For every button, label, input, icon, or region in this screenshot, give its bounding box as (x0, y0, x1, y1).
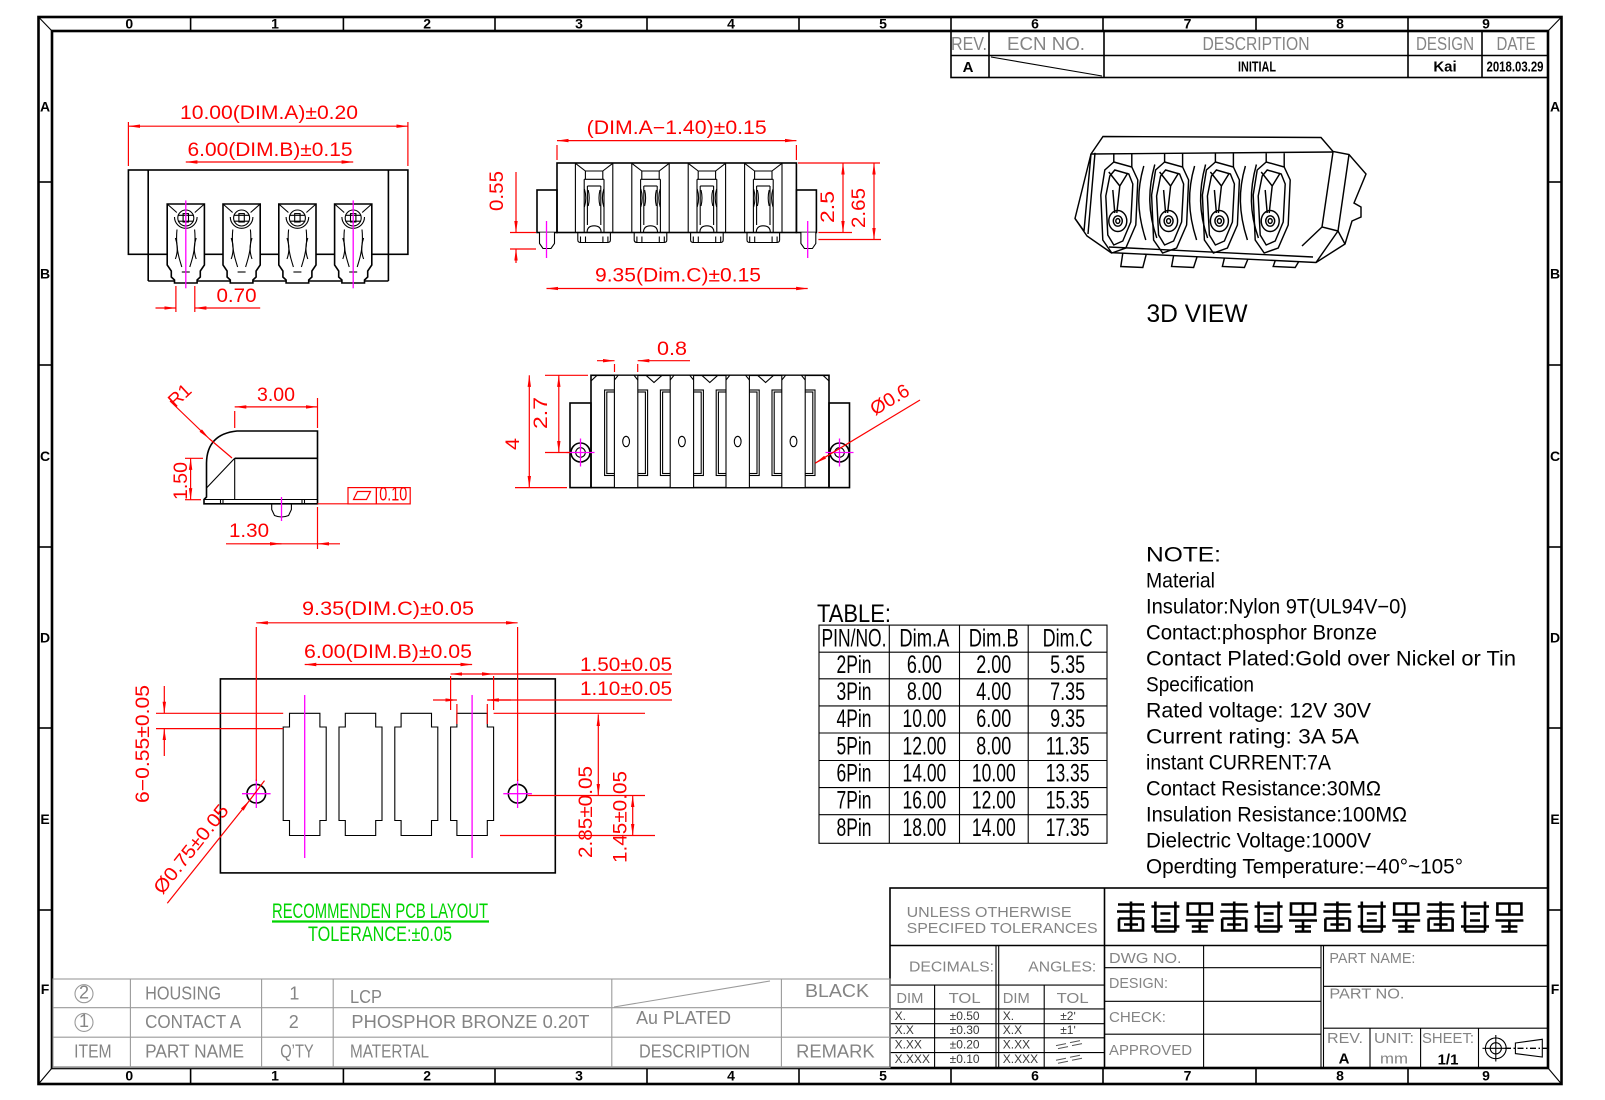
svg-text:8Pin: 8Pin (837, 814, 872, 842)
svg-text:UNIT:: UNIT: (1374, 1030, 1414, 1047)
svg-text:5: 5 (879, 16, 887, 32)
svg-text:18.00: 18.00 (903, 814, 947, 842)
svg-text:6.00: 6.00 (976, 705, 1011, 733)
svg-text:C: C (1550, 448, 1560, 464)
svg-text:DESCRIPTION: DESCRIPTION (1203, 34, 1310, 54)
svg-text:RECOMMENDEN PCB LAYOUT: RECOMMENDEN PCB LAYOUT (272, 900, 488, 923)
svg-text:C: C (40, 448, 50, 464)
svg-text:5: 5 (879, 1068, 887, 1084)
svg-text:6.00(DIM.B)±0.05: 6.00(DIM.B)±0.05 (304, 642, 472, 663)
svg-text:±0.10: ±0.10 (950, 1052, 980, 1066)
svg-text:A: A (1550, 99, 1560, 115)
svg-text:Specification: Specification (1146, 674, 1254, 697)
svg-text:2.85±0.05: 2.85±0.05 (576, 766, 597, 858)
svg-text:15.35: 15.35 (1046, 787, 1090, 815)
svg-text:Insulator:Nylon 9T(UL94V−0): Insulator:Nylon 9T(UL94V−0) (1146, 596, 1407, 619)
svg-text:A: A (40, 99, 50, 115)
svg-text:±1ʹ: ±1ʹ (1060, 1023, 1076, 1037)
svg-text:Rated voltage: 12V 30V: Rated voltage: 12V 30V (1146, 700, 1371, 723)
svg-text:F: F (1551, 981, 1560, 997)
svg-text:Dielectric Voltage:1000V: Dielectric Voltage:1000V (1146, 830, 1371, 853)
svg-text:REV.: REV. (1327, 1030, 1363, 1047)
svg-text:1.50±0.05: 1.50±0.05 (580, 655, 672, 676)
svg-text:1.50: 1.50 (171, 462, 192, 500)
svg-text:10.00: 10.00 (972, 760, 1016, 788)
svg-text:X.XX: X.XX (895, 1038, 922, 1052)
svg-text:LCP: LCP (350, 987, 382, 1007)
svg-text:2018.03.29: 2018.03.29 (1487, 59, 1544, 76)
svg-text:ANGLES:: ANGLES: (1028, 958, 1096, 975)
svg-text:6: 6 (1031, 16, 1039, 32)
svg-text:9.35(Dim.C)±0.15: 9.35(Dim.C)±0.15 (595, 266, 761, 287)
svg-text:PIN/NO.: PIN/NO. (822, 625, 887, 653)
svg-text:D: D (40, 630, 50, 646)
svg-text:3D VIEW: 3D VIEW (1147, 300, 1248, 328)
svg-text:DESIGN: DESIGN (1416, 34, 1474, 54)
svg-text:10.00: 10.00 (903, 705, 947, 733)
svg-text:4Pin: 4Pin (837, 705, 872, 733)
svg-text:TOL: TOL (949, 990, 981, 1007)
svg-text:1: 1 (79, 1011, 89, 1031)
svg-text:6.00: 6.00 (907, 651, 942, 679)
svg-text:4.00: 4.00 (976, 678, 1011, 706)
svg-text:Operdting Temperature:−40°~10: Operdting Temperature:−40°~105° (1146, 856, 1463, 879)
svg-text:Q’TY: Q’TY (280, 1042, 314, 1062)
svg-text:Au PLATED: Au PLATED (636, 1008, 731, 1028)
svg-text:TOLERANCE:±0.05: TOLERANCE:±0.05 (308, 923, 452, 946)
svg-text:Dim.C: Dim.C (1043, 625, 1093, 653)
svg-text:1: 1 (271, 1068, 279, 1084)
svg-text:2.7: 2.7 (531, 397, 552, 429)
svg-text:X.X: X.X (895, 1023, 914, 1037)
svg-text:REV.: REV. (951, 34, 987, 54)
svg-text:16.00: 16.00 (903, 787, 947, 815)
svg-text:Insulation Resistance:100MΩ: Insulation Resistance:100MΩ (1146, 804, 1407, 827)
svg-text:E: E (1550, 811, 1559, 827)
svg-text:DESIGN:: DESIGN: (1109, 975, 1168, 992)
svg-text:ECN NO.: ECN NO. (1007, 34, 1085, 54)
svg-text:X.: X. (895, 1009, 906, 1023)
svg-text:DECIMALS:: DECIMALS: (909, 958, 994, 975)
svg-text:1/1: 1/1 (1438, 1052, 1459, 1069)
svg-text:11.35: 11.35 (1046, 732, 1090, 760)
svg-text:Current rating: 3A 5A: Current rating: 3A 5A (1146, 726, 1359, 749)
svg-text:CONTACT A: CONTACT A (145, 1012, 241, 1032)
svg-text:9.35(DIM.C)±0.05: 9.35(DIM.C)±0.05 (302, 599, 474, 620)
svg-text:instant CURRENT:7A: instant CURRENT:7A (1146, 752, 1331, 775)
svg-text:1.45±0.05: 1.45±0.05 (611, 771, 632, 863)
svg-text:2.00: 2.00 (976, 651, 1011, 679)
svg-text:Contact Plated:Gold over Ni: Contact Plated:Gold over Nickel or Tin (1146, 648, 1516, 671)
svg-text:PART NAME: PART NAME (145, 1042, 244, 1062)
svg-text:12.00: 12.00 (903, 732, 947, 760)
svg-text:DIM: DIM (1003, 990, 1030, 1007)
svg-text:1: 1 (289, 984, 299, 1004)
svg-text:3: 3 (575, 16, 583, 32)
svg-text:PHOSPHOR BRONZE 0.20T: PHOSPHOR BRONZE 0.20T (351, 1012, 589, 1032)
svg-text:6: 6 (1031, 1068, 1039, 1084)
svg-text:mm: mm (1380, 1051, 1408, 1068)
svg-text:Contact Resistance:30MΩ: Contact Resistance:30MΩ (1146, 778, 1381, 801)
svg-text:A: A (1339, 1051, 1350, 1068)
svg-text:1: 1 (271, 16, 279, 32)
svg-text:6−0.55±0.05: 6−0.55±0.05 (133, 685, 154, 803)
svg-text:Dim.B: Dim.B (969, 625, 1019, 653)
svg-text:D: D (1550, 630, 1560, 646)
svg-text:6Pin: 6Pin (837, 760, 872, 788)
svg-text:0.10: 0.10 (379, 485, 407, 506)
svg-text:UNLESS OTHERWISE: UNLESS OTHERWISE (907, 904, 1072, 921)
svg-text:Contact:phosphor Bronze: Contact:phosphor Bronze (1146, 622, 1377, 645)
svg-text:2.65: 2.65 (849, 188, 870, 228)
svg-text:B: B (1550, 266, 1560, 282)
svg-text:7.35: 7.35 (1050, 678, 1085, 706)
svg-text:0: 0 (125, 1068, 133, 1084)
svg-text:8.00: 8.00 (976, 732, 1011, 760)
svg-text:0: 0 (125, 16, 133, 32)
svg-text:3: 3 (575, 1068, 583, 1084)
svg-text:TOL: TOL (1057, 990, 1089, 1007)
svg-text:4: 4 (727, 1068, 735, 1084)
svg-text:CHECK:: CHECK: (1109, 1009, 1166, 1026)
svg-text:X.XX: X.XX (1003, 1038, 1030, 1052)
svg-text:Kai: Kai (1433, 59, 1456, 76)
svg-text:12.00: 12.00 (972, 787, 1016, 815)
svg-text:1.10±0.05: 1.10±0.05 (580, 679, 672, 700)
svg-text:14.00: 14.00 (972, 814, 1016, 842)
svg-text:0.70: 0.70 (217, 286, 257, 307)
svg-text:0.8: 0.8 (657, 339, 687, 360)
svg-text:14.00: 14.00 (903, 760, 947, 788)
svg-text:F: F (41, 981, 50, 997)
svg-text:BLACK: BLACK (805, 981, 869, 1001)
svg-text:9: 9 (1482, 16, 1490, 32)
svg-text:±0.50: ±0.50 (950, 1009, 980, 1023)
svg-text:5.35: 5.35 (1050, 651, 1085, 679)
svg-text:10.00(DIM.A)±0.20: 10.00(DIM.A)±0.20 (180, 103, 358, 124)
svg-text:9: 9 (1482, 1068, 1490, 1084)
svg-text:E: E (40, 811, 49, 827)
svg-text:2: 2 (423, 1068, 431, 1084)
svg-text:SHEET:: SHEET: (1422, 1030, 1474, 1047)
svg-text:3.00: 3.00 (257, 385, 295, 406)
svg-text:4: 4 (727, 16, 735, 32)
svg-text:X.XXX: X.XXX (1003, 1052, 1038, 1066)
svg-text:2.5: 2.5 (818, 191, 839, 223)
svg-text:±0.20: ±0.20 (950, 1038, 980, 1052)
svg-text:8.00: 8.00 (907, 678, 942, 706)
svg-text:PART NAME:: PART NAME: (1329, 950, 1415, 967)
svg-text:DWG NO.: DWG NO. (1109, 950, 1182, 967)
svg-text:2Pin: 2Pin (837, 651, 872, 679)
svg-text:ITEM: ITEM (74, 1042, 112, 1062)
svg-text:X.XXX: X.XXX (895, 1052, 930, 1066)
svg-text:7Pin: 7Pin (837, 787, 872, 815)
svg-text:X.X: X.X (1003, 1023, 1022, 1037)
svg-text:X.: X. (1003, 1009, 1014, 1023)
svg-text:7: 7 (1184, 16, 1192, 32)
svg-text:8: 8 (1336, 16, 1344, 32)
svg-text:SPECIFED TOLERANCES: SPECIFED TOLERANCES (907, 920, 1098, 937)
svg-text:B: B (40, 266, 50, 282)
svg-text:(DIM.A−1.40)±0.15: (DIM.A−1.40)±0.15 (587, 118, 767, 139)
svg-text:2: 2 (79, 983, 89, 1003)
svg-text:APPROVED: APPROVED (1109, 1042, 1192, 1059)
svg-text:HOUSING: HOUSING (145, 984, 221, 1004)
svg-text:DESCRIPTION: DESCRIPTION (639, 1042, 750, 1062)
svg-text:PART NO.: PART NO. (1329, 985, 1404, 1002)
svg-text:NOTE:: NOTE: (1146, 544, 1221, 567)
svg-text:Dim.A: Dim.A (899, 625, 949, 653)
svg-text:17.35: 17.35 (1046, 814, 1090, 842)
svg-text:3Pin: 3Pin (837, 678, 872, 706)
svg-text:±2ʹ: ±2ʹ (1060, 1009, 1076, 1023)
svg-text:±0.30: ±0.30 (950, 1023, 980, 1037)
svg-text:13.35: 13.35 (1046, 760, 1090, 788)
svg-text:INITIAL: INITIAL (1238, 59, 1276, 76)
svg-text:9.35: 9.35 (1050, 705, 1085, 733)
svg-text:4: 4 (503, 438, 524, 450)
svg-text:DATE: DATE (1497, 34, 1536, 54)
svg-text:2: 2 (423, 16, 431, 32)
svg-text:6.00(DIM.B)±0.15: 6.00(DIM.B)±0.15 (188, 140, 353, 161)
svg-text:Material: Material (1146, 570, 1215, 593)
svg-text:5Pin: 5Pin (837, 732, 872, 760)
svg-text:8: 8 (1336, 1068, 1344, 1084)
svg-text:2: 2 (289, 1012, 299, 1032)
svg-text:0.55: 0.55 (487, 171, 508, 211)
svg-text:REMARK: REMARK (796, 1042, 875, 1062)
svg-text:DIM: DIM (896, 990, 923, 1007)
svg-text:1.30: 1.30 (229, 521, 269, 542)
svg-text:7: 7 (1184, 1068, 1192, 1084)
svg-text:A: A (963, 59, 974, 76)
svg-text:MATERTAL: MATERTAL (350, 1042, 429, 1062)
